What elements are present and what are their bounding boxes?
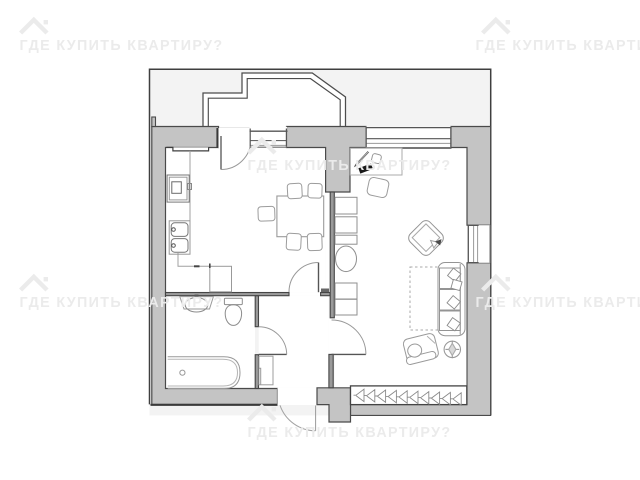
svg-text:ГДЕ КУПИТЬ КВАРТИРУ?: ГДЕ КУПИТЬ КВАРТИРУ? bbox=[248, 425, 452, 441]
svg-text:ГДЕ КУПИТЬ КВАРТИРУ?: ГДЕ КУПИТЬ КВАРТИРУ? bbox=[20, 295, 224, 311]
svg-text:ГДЕ КУПИТЬ КВАРТИРУ?: ГДЕ КУПИТЬ КВАРТИРУ? bbox=[248, 158, 452, 174]
svg-text:ГДЕ КУПИТЬ КВАРТИРУ?: ГДЕ КУПИТЬ КВАРТИРУ? bbox=[20, 38, 224, 54]
svg-text:ГДЕ КУПИТЬ КВАРТИРУ?: ГДЕ КУПИТЬ КВАРТИРУ? bbox=[476, 38, 640, 54]
svg-text:ГДЕ КУПИТЬ КВАРТИРУ?: ГДЕ КУПИТЬ КВАРТИРУ? bbox=[476, 295, 640, 311]
